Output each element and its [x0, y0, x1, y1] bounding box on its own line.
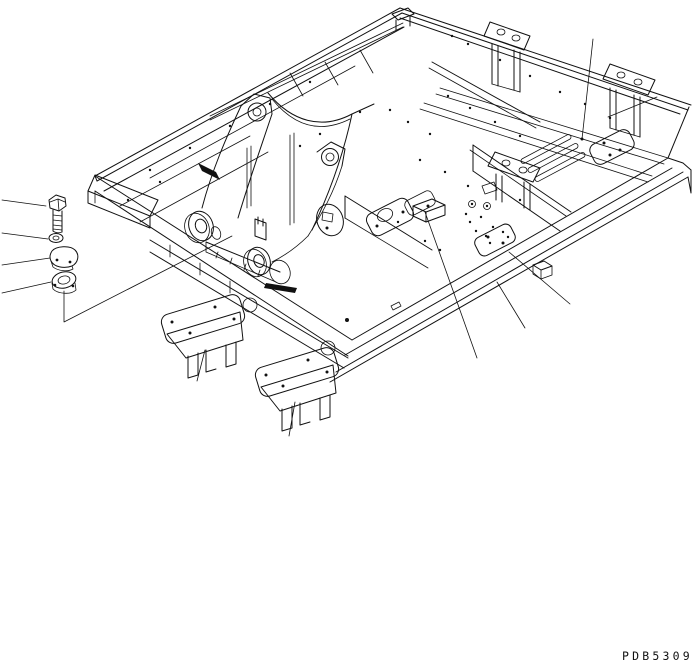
frame-rear-right-rail — [392, 8, 691, 158]
frame-top-left-rail — [95, 8, 404, 191]
parts-diagram-page: PDB5309 — [0, 0, 694, 668]
hardware-cover-plate — [50, 247, 78, 271]
boom-mounting-bracket — [181, 93, 374, 287]
deck-drain-slots — [520, 134, 586, 183]
hardware-bolt — [49, 195, 66, 233]
frame-front-left-rail — [95, 176, 352, 368]
deck-longitudinal-rails — [120, 23, 403, 222]
frame-front-right-rail — [330, 158, 691, 382]
rail-hatch-bar — [198, 163, 220, 180]
deck-brackets — [364, 127, 637, 279]
main-frame-isometric-drawing: PDB5309 — [0, 0, 694, 668]
hardware-ring-flange — [51, 270, 78, 294]
part-number-label: PDB5309 — [622, 649, 693, 663]
callout-leader-lines — [2, 39, 657, 436]
mounting-foot-left — [159, 293, 246, 378]
frame-left-step — [88, 175, 158, 228]
rear-stanchion-posts — [484, 22, 655, 210]
hardware-washer — [49, 234, 63, 243]
